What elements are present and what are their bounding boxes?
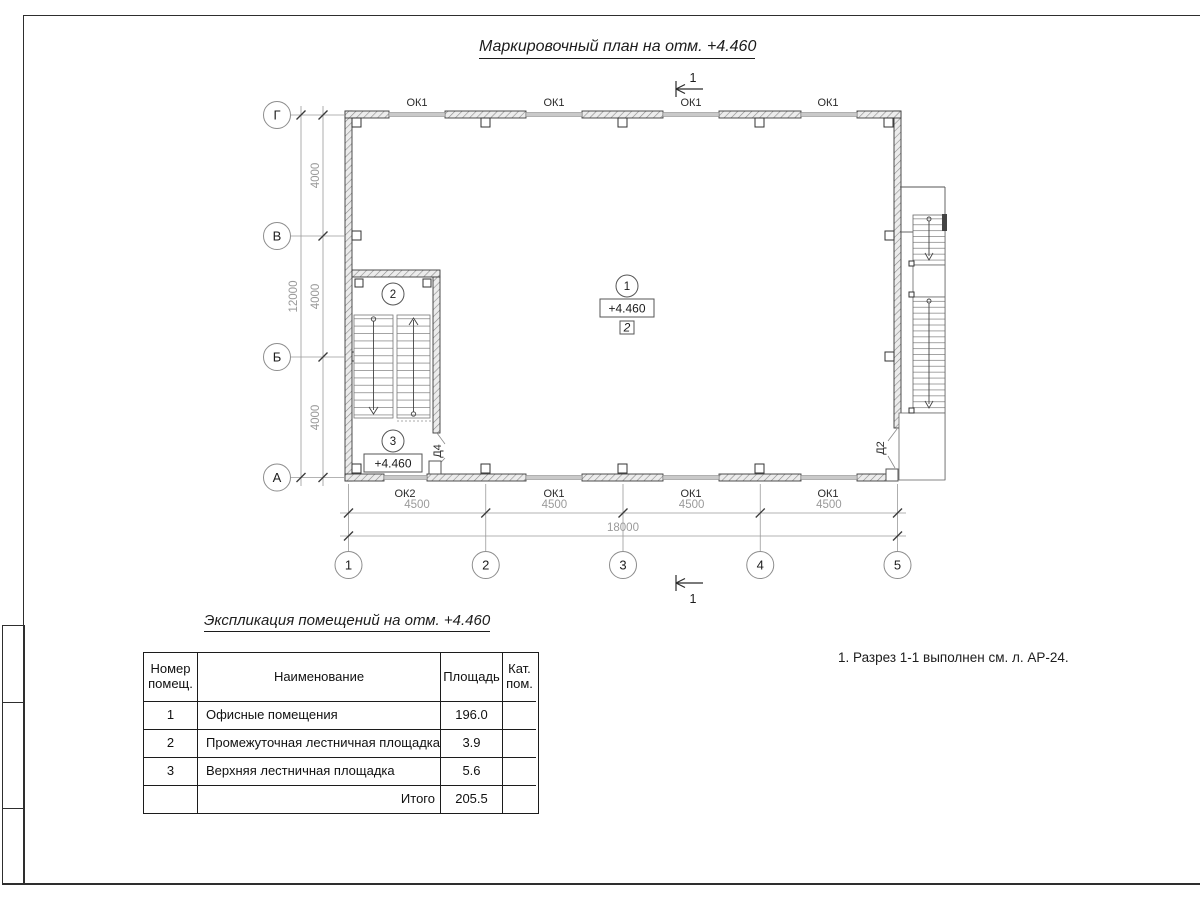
stairwell-top-wall	[352, 270, 440, 277]
svg-text:3: 3	[619, 558, 626, 573]
svg-text:1: 1	[345, 558, 352, 573]
row-area: 3.9	[441, 730, 503, 758]
grid-left: Г В Б А 4000 4000 4000 12000	[264, 102, 346, 492]
window-label: ОК1	[543, 97, 564, 109]
dim-18000: 18000	[607, 522, 639, 534]
svg-text:3: 3	[390, 436, 396, 448]
window-top-4	[801, 113, 857, 117]
door-label: Д4	[432, 444, 444, 458]
door-label: Д2	[875, 441, 887, 455]
row-num: 1	[144, 702, 198, 730]
row-cat	[503, 702, 536, 730]
section-number: 1	[690, 592, 697, 606]
window-top-3	[663, 113, 719, 117]
svg-text:4: 4	[757, 558, 764, 573]
dim-4000: 4000	[310, 284, 322, 310]
right-wall	[894, 111, 901, 428]
row-num: 2	[144, 730, 198, 758]
row-name: Промежуточная лестничная площадка	[198, 730, 441, 758]
ext-stair-landing-bottom	[899, 413, 945, 480]
section-mark-top: 1	[676, 71, 703, 97]
row-name: Верхняя лестничная площадка	[198, 758, 441, 786]
window-top-1	[389, 113, 445, 117]
grid-bottom: 4500 4500 4500 4500 18000 1 2 3 4 5	[335, 484, 911, 579]
row-cat	[503, 730, 536, 758]
window-label: ОК1	[680, 97, 701, 109]
total-area: 205.5	[441, 786, 503, 813]
col-header-name: Наименование	[198, 653, 441, 702]
svg-text:1: 1	[624, 281, 630, 293]
door-d4: Д4	[429, 433, 445, 474]
svg-text:А: А	[273, 470, 282, 485]
room-schedule-table: Номерпомещ. Наименование Площадь Кат.пом…	[143, 652, 539, 814]
svg-text:Г: Г	[273, 108, 280, 123]
left-wall	[345, 111, 352, 481]
dim-4500: 4500	[679, 499, 705, 511]
window-bottom-3	[663, 476, 719, 480]
door-leaf	[886, 469, 898, 481]
row-name: Офисные помещения	[198, 702, 441, 730]
door-d2: Д2	[875, 429, 898, 481]
dim-4000: 4000	[310, 163, 322, 189]
window-label: ОК1	[817, 97, 838, 109]
ext-stair-landing-mid	[913, 265, 945, 297]
col-header-area: Площадь	[441, 653, 503, 702]
dim-4000: 4000	[310, 405, 322, 431]
dim-12000: 12000	[288, 281, 300, 313]
dim-4500: 4500	[816, 499, 842, 511]
stairwell-right-wall	[433, 277, 440, 433]
row-num: 3	[144, 758, 198, 786]
svg-text:2: 2	[623, 321, 631, 335]
window-bottom-4	[801, 476, 857, 480]
svg-text:+4.460: +4.460	[608, 302, 645, 316]
row-area: 196.0	[441, 702, 503, 730]
external-stair	[899, 187, 947, 480]
total-cat	[503, 786, 536, 813]
svg-text:+4.460: +4.460	[374, 457, 411, 471]
col-header-cat: Кат.пом.	[503, 653, 536, 702]
window-top-2	[526, 113, 582, 117]
svg-text:В: В	[273, 229, 282, 244]
svg-text:5: 5	[894, 558, 901, 573]
dim-4500: 4500	[404, 499, 430, 511]
svg-text:Б: Б	[273, 350, 282, 365]
row-cat	[503, 758, 536, 786]
window-bottom-2	[526, 476, 582, 480]
door-leaf	[429, 461, 441, 474]
window-label: ОК1	[406, 97, 427, 109]
section-number: 1	[690, 71, 697, 85]
row-area: 5.6	[441, 758, 503, 786]
svg-text:2: 2	[390, 289, 396, 301]
window-bottom-1	[384, 476, 427, 480]
drawing-sheet: Маркировочный план на отм. +4.460 Экспли…	[0, 0, 1200, 900]
total-empty	[144, 786, 198, 813]
svg-text:2: 2	[482, 558, 489, 573]
total-label: Итого	[198, 786, 441, 813]
dim-4500: 4500	[542, 499, 568, 511]
col-header-num: Номерпомещ.	[144, 653, 198, 702]
section-mark-bottom: 1	[676, 575, 703, 606]
